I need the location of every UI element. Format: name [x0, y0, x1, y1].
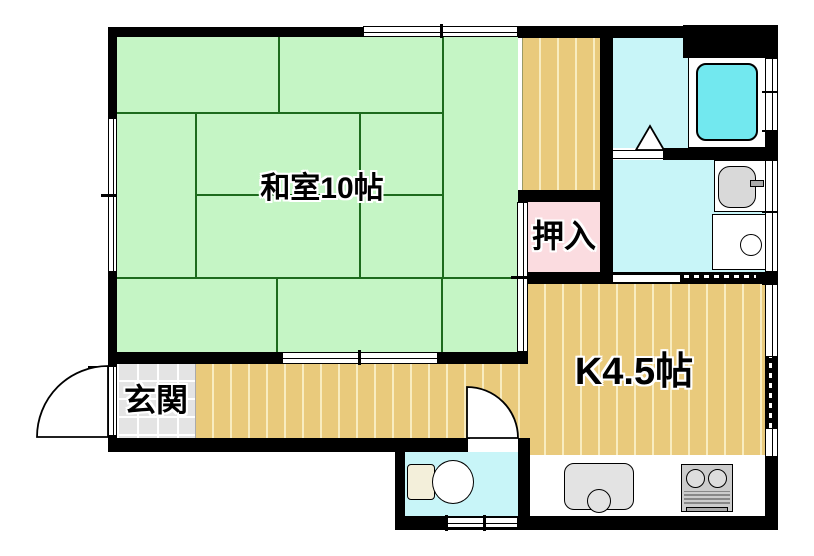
wall — [395, 438, 405, 528]
stove-burner-icon — [708, 469, 727, 488]
wall — [438, 352, 528, 364]
dashed-opening — [684, 275, 756, 278]
bath-doorway — [613, 150, 663, 159]
washroom-doorway — [613, 274, 680, 283]
floor-plan: 和室10帖 押入 玄関 K4.5帖 — [0, 0, 814, 556]
kitchen-label: K4.5帖 — [534, 352, 734, 394]
wall — [518, 190, 613, 202]
window-tick — [511, 276, 527, 279]
window-tick — [101, 194, 117, 197]
wall — [108, 438, 405, 452]
wall — [765, 133, 778, 160]
dashed-opening — [769, 357, 772, 428]
toilet-doorway — [468, 439, 518, 452]
tatami-line — [278, 37, 280, 112]
stove-grill-icon — [684, 491, 730, 504]
toilet-seat — [432, 460, 474, 504]
wall — [683, 25, 778, 58]
tatami-line — [442, 37, 444, 277]
basin-faucet-icon — [750, 180, 764, 187]
wall — [530, 516, 778, 530]
wall — [518, 438, 530, 528]
stove-burner-icon — [686, 469, 705, 488]
wall — [108, 352, 282, 364]
kitchen-sink-drain-icon — [587, 489, 611, 513]
corridor — [196, 364, 528, 438]
wall — [395, 438, 470, 452]
oshiire-label: 押入 — [522, 219, 606, 254]
window — [765, 428, 778, 457]
tatami-line — [195, 112, 197, 277]
window-tick — [440, 24, 443, 38]
wood-alcove-strip — [523, 38, 600, 190]
toilet-tank — [407, 464, 435, 500]
wall — [108, 27, 117, 118]
window — [765, 58, 778, 133]
window-tick — [483, 515, 486, 531]
window-tick — [762, 130, 778, 132]
window-tick — [762, 91, 778, 93]
window — [765, 284, 778, 357]
washitsu-label: 和室10帖 — [212, 172, 432, 205]
window — [765, 160, 778, 272]
tatami-line — [117, 277, 518, 279]
stove-base — [686, 507, 728, 512]
bathtub — [696, 63, 758, 141]
wash-basin — [718, 166, 756, 208]
lintel-tick — [88, 366, 108, 368]
entrance-door-swing — [37, 366, 108, 437]
wall — [108, 27, 363, 37]
window-tick — [445, 515, 448, 531]
tatami-line — [276, 277, 278, 352]
washing-machine-drum-icon — [740, 234, 762, 256]
window-tick — [762, 211, 778, 213]
genkan-label: 玄関 — [114, 383, 198, 418]
window-tick — [762, 283, 778, 285]
wall — [663, 148, 778, 160]
tatami-line — [441, 277, 443, 352]
floor-seam — [522, 38, 523, 190]
tatami-line — [117, 112, 443, 114]
window-tick — [358, 350, 361, 365]
